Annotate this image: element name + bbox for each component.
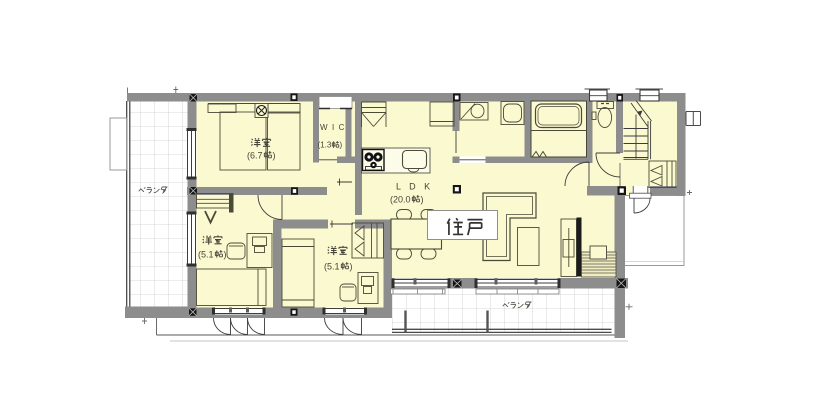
svg-text:): ) — [421, 195, 424, 205]
svg-text:): ) — [340, 141, 343, 150]
svg-text:): ) — [350, 262, 353, 272]
svg-text:(1.3: (1.3 — [318, 141, 332, 150]
svg-text:(5.1: (5.1 — [198, 250, 214, 260]
svg-text:W I C: W I C — [320, 123, 346, 132]
svg-text:(20.0: (20.0 — [390, 195, 411, 205]
svg-text:(5.1: (5.1 — [324, 262, 340, 272]
svg-text:): ) — [224, 250, 227, 260]
svg-text:(6.7: (6.7 — [247, 151, 263, 161]
svg-text:): ) — [273, 151, 276, 161]
svg-text:L D K: L D K — [396, 182, 433, 192]
